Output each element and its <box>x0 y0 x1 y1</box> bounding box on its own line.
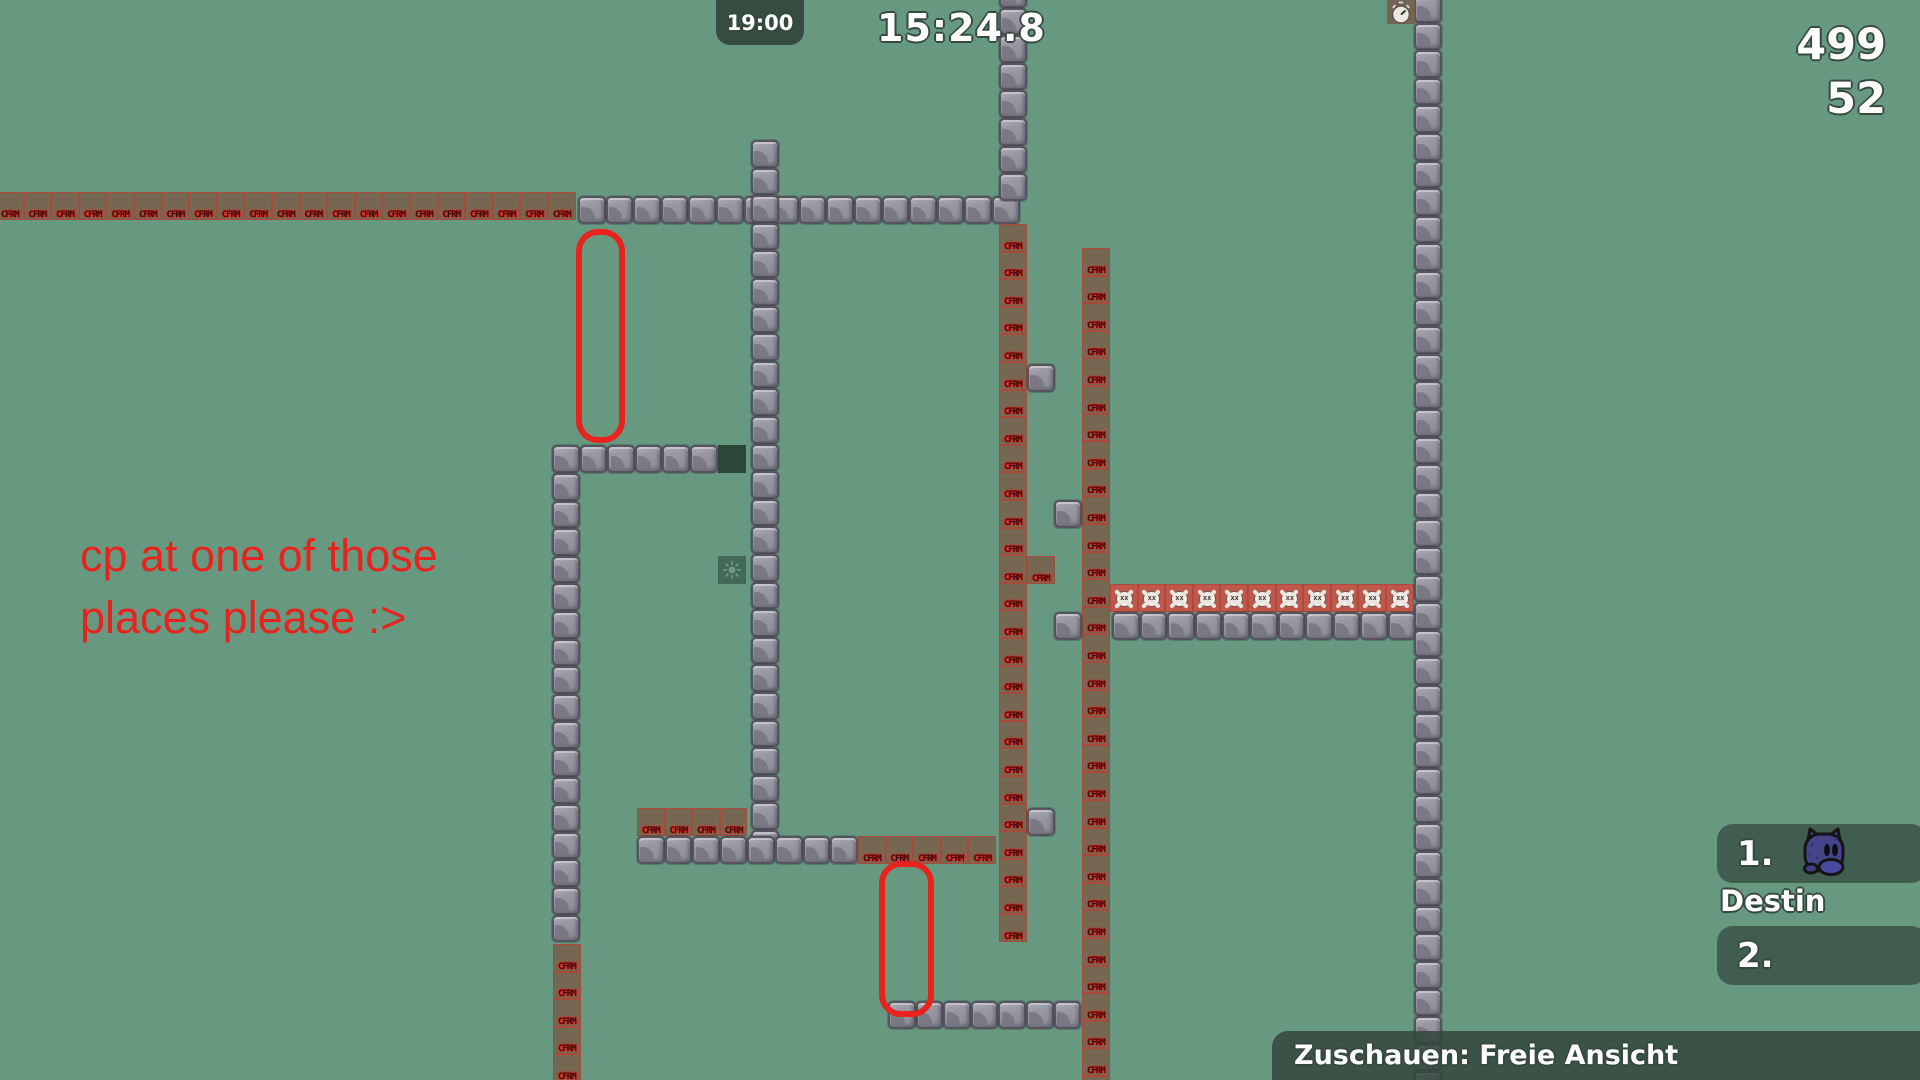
stone-tile <box>751 333 779 361</box>
freeze-tile-label: CFRM <box>1004 683 1022 693</box>
freeze-tile-label: CFRM <box>443 210 461 220</box>
skull-icon: xx <box>1143 591 1160 607</box>
scoreboard-row-2: 2. <box>1717 926 1920 985</box>
freeze-tile-label: CFRM <box>1004 462 1022 472</box>
stone-tile <box>1414 188 1442 216</box>
freeze-tile-label: CFRM <box>1087 983 1105 993</box>
freeze-tile-label: CFRM <box>642 826 660 836</box>
freeze-tile-label: CFRM <box>1087 293 1105 303</box>
freeze-tile-label: CFRM <box>863 854 881 864</box>
stone-tile <box>751 664 779 692</box>
freeze-tile-label: CFRM <box>670 826 688 836</box>
stone-tile <box>751 802 779 830</box>
freeze-tile-label: CFRM <box>1087 680 1105 690</box>
freeze-tile: CFRM <box>999 804 1027 832</box>
stone-tile <box>1140 612 1168 640</box>
freeze-tile: CFRM <box>244 192 272 220</box>
stone-tile <box>552 611 580 639</box>
stone-tile <box>1414 989 1442 1017</box>
freeze-tile-label: CFRM <box>1087 348 1105 358</box>
freeze-tile-label: CFRM <box>305 210 323 220</box>
kill-tile: xx <box>1138 584 1166 612</box>
stone-tile <box>1414 602 1442 630</box>
stone-tile <box>607 445 635 473</box>
stone-tile <box>552 721 580 749</box>
stone-tile <box>1027 808 1055 836</box>
freeze-tile: CFRM <box>106 192 134 220</box>
hud-counters: 499 52 <box>1796 18 1886 126</box>
annotation-capsule-1 <box>576 229 625 443</box>
freeze-tile: CFRM <box>1082 717 1110 745</box>
freeze-tile: CFRM <box>162 192 190 220</box>
solid-dark-tile <box>718 445 746 473</box>
freeze-tile-label: CFRM <box>1087 266 1105 276</box>
freeze-tile-label: CFRM <box>1004 435 1022 445</box>
stone-tile <box>1414 961 1442 989</box>
counter-secondary: 52 <box>1796 72 1886 126</box>
sun-entity-tile <box>718 556 746 584</box>
stone-tile <box>826 196 854 224</box>
freeze-tile-label: CFRM <box>249 210 267 220</box>
stone-tile <box>1250 612 1278 640</box>
freeze-tile-label: CFRM <box>1004 518 1022 528</box>
freeze-tile-label: CFRM <box>277 210 295 220</box>
stone-tile <box>1414 519 1442 547</box>
stone-tile <box>1388 612 1416 640</box>
kill-tile: xx <box>1303 584 1331 612</box>
freeze-tile: CFRM <box>999 252 1027 280</box>
freeze-tile-label: CFRM <box>525 210 543 220</box>
stone-tile <box>1026 1001 1054 1029</box>
stone-tile <box>909 196 937 224</box>
stone-tile <box>1360 612 1388 640</box>
stone-tile <box>751 499 779 527</box>
freeze-tile: CFRM <box>1082 358 1110 386</box>
freeze-tile-label: CFRM <box>1087 818 1105 828</box>
stone-tile <box>1278 612 1306 640</box>
stone-tile <box>751 223 779 251</box>
skull-icon: xx <box>1309 591 1326 607</box>
stone-tile <box>999 146 1027 174</box>
skull-icon: xx <box>1199 591 1216 607</box>
stone-tile <box>999 118 1027 146</box>
freeze-tile: CFRM <box>493 192 521 220</box>
freeze-tile-label: CFRM <box>1004 821 1022 831</box>
freeze-tile-label: CFRM <box>470 210 488 220</box>
stone-tile <box>1414 768 1442 796</box>
freeze-tile-label: CFRM <box>725 826 743 836</box>
freeze-tile: CFRM <box>79 192 107 220</box>
freeze-tile: CFRM <box>1082 690 1110 718</box>
kill-tile: xx <box>1358 584 1386 612</box>
stone-tile <box>830 836 858 864</box>
freeze-tile: CFRM <box>1082 772 1110 800</box>
stone-tile <box>552 473 580 501</box>
stone-tile <box>751 195 779 223</box>
freeze-tile: CFRM <box>886 836 914 864</box>
stone-tile <box>1414 851 1442 879</box>
skull-icon: xx <box>1116 591 1133 607</box>
stone-tile <box>751 388 779 416</box>
freeze-tile: CFRM <box>999 224 1027 252</box>
freeze-tile: CFRM <box>1082 496 1110 524</box>
stone-tile <box>692 836 720 864</box>
freeze-tile-label: CFRM <box>1004 324 1022 334</box>
stone-tile <box>552 777 580 805</box>
stone-tile <box>720 836 748 864</box>
freeze-tile: CFRM <box>553 944 581 972</box>
stone-tile <box>803 836 831 864</box>
freeze-tile-label: CFRM <box>1087 900 1105 910</box>
stone-tile <box>751 168 779 196</box>
skull-icon: xx <box>1364 591 1381 607</box>
stone-tile <box>998 1001 1026 1029</box>
tee-avatar <box>1798 825 1850 881</box>
stone-tile <box>552 445 580 473</box>
stone-tile <box>1222 612 1250 640</box>
stone-tile <box>1414 823 1442 851</box>
stone-tile <box>1305 612 1333 640</box>
freeze-tile-label: CFRM <box>946 854 964 864</box>
skull-icon: xx <box>1392 591 1409 607</box>
rank-1-label: 1. <box>1737 834 1774 874</box>
freeze-tile: CFRM <box>999 528 1027 556</box>
stone-tile <box>747 836 775 864</box>
freeze-tile: CFRM <box>999 307 1027 335</box>
stone-tile <box>1414 326 1442 354</box>
freeze-tile-label: CFRM <box>84 210 102 220</box>
stone-tile <box>971 1001 999 1029</box>
skull-icon: xx <box>1171 591 1188 607</box>
freeze-tile: CFRM <box>1082 1048 1110 1076</box>
freeze-tile-label: CFRM <box>222 210 240 220</box>
race-timer: 15:24.8 <box>877 6 1046 50</box>
freeze-tile-label: CFRM <box>1004 407 1022 417</box>
freeze-tile: CFRM <box>720 808 748 836</box>
freeze-tile-label: CFRM <box>1004 380 1022 390</box>
freeze-tile-label: CFRM <box>1087 652 1105 662</box>
freeze-tile: CFRM <box>1082 331 1110 359</box>
freeze-tile: CFRM <box>1082 386 1110 414</box>
freeze-tile-label: CFRM <box>1087 624 1105 634</box>
stone-tile <box>635 445 663 473</box>
freeze-tile: CFRM <box>465 192 493 220</box>
stone-tile <box>751 361 779 389</box>
freeze-tile: CFRM <box>999 334 1027 362</box>
freeze-tile: CFRM <box>665 808 693 836</box>
stone-tile <box>1414 271 1442 299</box>
freeze-tile-label: CFRM <box>1087 431 1105 441</box>
freeze-tile-label: CFRM <box>558 1044 576 1054</box>
freeze-tile: CFRM <box>1082 276 1110 304</box>
freeze-tile-label: CFRM <box>167 210 185 220</box>
freeze-tile-label: CFRM <box>973 854 991 864</box>
stone-tile <box>1414 492 1442 520</box>
stone-tile <box>751 747 779 775</box>
stone-tile <box>552 583 580 611</box>
stone-tile <box>999 63 1027 91</box>
stone-tile <box>751 554 779 582</box>
stone-tile <box>751 609 779 637</box>
freeze-tile: CFRM <box>24 192 52 220</box>
server-clock-badge: 19:00 <box>716 0 804 45</box>
stone-tile <box>552 859 580 887</box>
freeze-tile: CFRM <box>1082 469 1110 497</box>
stone-tile <box>751 306 779 334</box>
freeze-tile-label: CFRM <box>139 210 157 220</box>
freeze-tile: CFRM <box>1082 938 1110 966</box>
freeze-tile-label: CFRM <box>498 210 516 220</box>
freeze-tile: CFRM <box>438 192 466 220</box>
freeze-tile-label: CFRM <box>1004 242 1022 252</box>
freeze-tile: CFRM <box>1082 662 1110 690</box>
freeze-tile: CFRM <box>134 192 162 220</box>
counter-primary: 499 <box>1796 18 1886 72</box>
stone-tile <box>1414 105 1442 133</box>
freeze-tile: CFRM <box>1082 1021 1110 1049</box>
stone-tile <box>1414 381 1442 409</box>
annotation-text: cp at one of those places please :> <box>80 525 438 649</box>
freeze-tile-label: CFRM <box>1004 876 1022 886</box>
stone-tile <box>662 445 690 473</box>
kill-tile: xx <box>1220 584 1248 612</box>
freeze-tile-label: CFRM <box>1004 600 1022 610</box>
stone-tile <box>1414 933 1442 961</box>
freeze-tile-label: CFRM <box>1004 766 1022 776</box>
freeze-tile-label: CFRM <box>1004 932 1022 942</box>
stone-tile <box>580 445 608 473</box>
freeze-tile-label: CFRM <box>1004 545 1022 555</box>
freeze-tile: CFRM <box>968 836 996 864</box>
freeze-tile-label: CFRM <box>1004 628 1022 638</box>
stone-tile <box>882 196 910 224</box>
freeze-tile: CFRM <box>1082 552 1110 580</box>
freeze-tile: CFRM <box>520 192 548 220</box>
stone-tile <box>751 444 779 472</box>
annotation-line-2: places please :> <box>80 587 438 649</box>
stone-tile <box>1414 630 1442 658</box>
freeze-tile-label: CFRM <box>1004 794 1022 804</box>
freeze-tile-label: CFRM <box>558 962 576 972</box>
freeze-tile-label: CFRM <box>415 210 433 220</box>
freeze-tile: CFRM <box>913 836 941 864</box>
freeze-tile: CFRM <box>1082 248 1110 276</box>
freeze-tile-label: CFRM <box>29 210 47 220</box>
freeze-tile-label: CFRM <box>1087 376 1105 386</box>
freeze-tile: CFRM <box>999 886 1027 914</box>
freeze-tile: CFRM <box>1082 745 1110 773</box>
freeze-tile: CFRM <box>999 445 1027 473</box>
stone-tile <box>751 775 779 803</box>
stone-tile <box>552 501 580 529</box>
stone-tile <box>1414 740 1442 768</box>
freeze-tile: CFRM <box>1082 524 1110 552</box>
freeze-tile-label: CFRM <box>360 210 378 220</box>
freeze-tile-label: CFRM <box>1087 321 1105 331</box>
freeze-tile: CFRM <box>692 808 720 836</box>
rank-2-label: 2. <box>1737 936 1774 976</box>
kill-tile: xx <box>1248 584 1276 612</box>
freeze-tile-label: CFRM <box>1087 514 1105 524</box>
freeze-tile: CFRM <box>1082 1076 1110 1080</box>
freeze-tile: CFRM <box>999 500 1027 528</box>
stone-tile <box>751 140 779 168</box>
stone-tile <box>552 887 580 915</box>
freeze-tile: CFRM <box>999 859 1027 887</box>
kill-tile: xx <box>1193 584 1221 612</box>
stone-tile <box>1414 161 1442 189</box>
freeze-tile: CFRM <box>999 638 1027 666</box>
stone-tile <box>999 173 1027 201</box>
freeze-tile: CFRM <box>999 914 1027 942</box>
stone-tile <box>1054 612 1082 640</box>
freeze-tile: CFRM <box>327 192 355 220</box>
freeze-tile: CFRM <box>999 721 1027 749</box>
freeze-tile: CFRM <box>1082 828 1110 856</box>
stone-tile <box>552 832 580 860</box>
stone-tile <box>552 749 580 777</box>
stone-tile <box>1414 23 1442 51</box>
skull-icon: xx <box>1281 591 1298 607</box>
stone-tile <box>637 836 665 864</box>
freeze-tile: CFRM <box>999 583 1027 611</box>
stone-tile <box>1414 575 1442 603</box>
freeze-tile-label: CFRM <box>1004 656 1022 666</box>
freeze-tile-label: CFRM <box>1004 738 1022 748</box>
freeze-tile: CFRM <box>999 776 1027 804</box>
stone-tile <box>606 196 634 224</box>
stone-tile <box>1414 464 1442 492</box>
freeze-tile: CFRM <box>1082 414 1110 442</box>
game-viewport[interactable]: CFRMCFRMCFRMCFRMCFRMCFRMCFRMCFRMCFRMCFRM… <box>0 0 1920 1080</box>
stone-tile <box>751 637 779 665</box>
stone-tile <box>1414 409 1442 437</box>
stone-tile <box>552 915 580 943</box>
freeze-tile: CFRM <box>999 748 1027 776</box>
freeze-tile: CFRM <box>272 192 300 220</box>
freeze-tile-label: CFRM <box>558 1017 576 1027</box>
freeze-tile-label: CFRM <box>387 210 405 220</box>
freeze-tile-label: CFRM <box>111 210 129 220</box>
freeze-tile: CFRM <box>1082 579 1110 607</box>
stone-tile <box>665 836 693 864</box>
stone-tile <box>854 196 882 224</box>
freeze-tile: CFRM <box>999 610 1027 638</box>
stone-tile <box>1414 547 1442 575</box>
stone-tile <box>1027 364 1055 392</box>
freeze-tile-label: CFRM <box>1087 845 1105 855</box>
skull-icon: xx <box>1337 591 1354 607</box>
freeze-tile: CFRM <box>553 1027 581 1055</box>
freeze-tile: CFRM <box>51 192 79 220</box>
stone-tile <box>751 416 779 444</box>
stone-tile <box>552 804 580 832</box>
freeze-tile-label: CFRM <box>1087 1038 1105 1048</box>
freeze-tile-label: CFRM <box>1087 928 1105 938</box>
kill-tile: xx <box>1386 584 1414 612</box>
stone-tile <box>1414 906 1442 934</box>
freeze-tile: CFRM <box>858 836 886 864</box>
stopwatch-tile <box>1387 0 1415 24</box>
stone-tile <box>1167 612 1195 640</box>
stone-tile <box>775 836 803 864</box>
stone-tile <box>999 90 1027 118</box>
stone-tile <box>552 666 580 694</box>
freeze-tile: CFRM <box>553 1054 581 1080</box>
stone-tile <box>1414 795 1442 823</box>
stone-tile <box>1195 612 1223 640</box>
stone-tile <box>751 526 779 554</box>
stone-tile <box>1414 299 1442 327</box>
stone-tile <box>1414 657 1442 685</box>
stone-tile <box>751 278 779 306</box>
stone-tile <box>552 639 580 667</box>
freeze-tile-label: CFRM <box>332 210 350 220</box>
player-name: Destin <box>1720 884 1825 918</box>
freeze-tile: CFRM <box>999 666 1027 694</box>
skull-icon: xx <box>1226 591 1243 607</box>
freeze-tile-label: CFRM <box>1087 486 1105 496</box>
stone-tile <box>552 528 580 556</box>
stone-tile <box>552 556 580 584</box>
stone-tile <box>1054 500 1082 528</box>
annotation-capsule-2 <box>879 861 934 1017</box>
freeze-tile-label: CFRM <box>1087 542 1105 552</box>
stone-tile <box>1414 216 1442 244</box>
stone-tile <box>1414 878 1442 906</box>
freeze-tile-label: CFRM <box>1004 352 1022 362</box>
freeze-tile-label: CFRM <box>1087 1066 1105 1076</box>
stone-tile <box>552 694 580 722</box>
freeze-tile-label: CFRM <box>1032 574 1050 584</box>
freeze-tile-label: CFRM <box>1004 904 1022 914</box>
stone-tile <box>751 720 779 748</box>
stone-tile <box>1414 713 1442 741</box>
freeze-tile: CFRM <box>1082 634 1110 662</box>
freeze-tile-label: CFRM <box>1087 597 1105 607</box>
freeze-tile-label: CFRM <box>1087 762 1105 772</box>
spectate-bar: Zuschauen: Freie Ansicht <box>1272 1031 1920 1080</box>
skull-icon: xx <box>1254 591 1271 607</box>
freeze-tile: CFRM <box>1082 607 1110 635</box>
stone-tile <box>633 196 661 224</box>
stone-tile <box>1414 354 1442 382</box>
stone-tile <box>799 196 827 224</box>
freeze-tile-label: CFRM <box>1 210 19 220</box>
kill-tile: xx <box>1165 584 1193 612</box>
freeze-tile: CFRM <box>1082 883 1110 911</box>
freeze-tile-label: CFRM <box>56 210 74 220</box>
freeze-tile: CFRM <box>1027 556 1055 584</box>
freeze-tile-label: CFRM <box>553 210 571 220</box>
freeze-tile: CFRM <box>1082 441 1110 469</box>
freeze-tile-label: CFRM <box>1004 297 1022 307</box>
freeze-tile-label: CFRM <box>194 210 212 220</box>
freeze-tile: CFRM <box>637 808 665 836</box>
stone-tile <box>937 196 965 224</box>
freeze-tile: CFRM <box>999 693 1027 721</box>
freeze-tile: CFRM <box>548 192 576 220</box>
stone-tile <box>688 196 716 224</box>
freeze-tile: CFRM <box>1082 910 1110 938</box>
kill-tile: xx <box>1110 584 1138 612</box>
freeze-tile: CFRM <box>999 279 1027 307</box>
freeze-tile-label: CFRM <box>1087 735 1105 745</box>
freeze-tile: CFRM <box>999 472 1027 500</box>
stone-tile <box>751 582 779 610</box>
freeze-tile: CFRM <box>189 192 217 220</box>
scoreboard-row-1: 1. <box>1717 824 1920 883</box>
